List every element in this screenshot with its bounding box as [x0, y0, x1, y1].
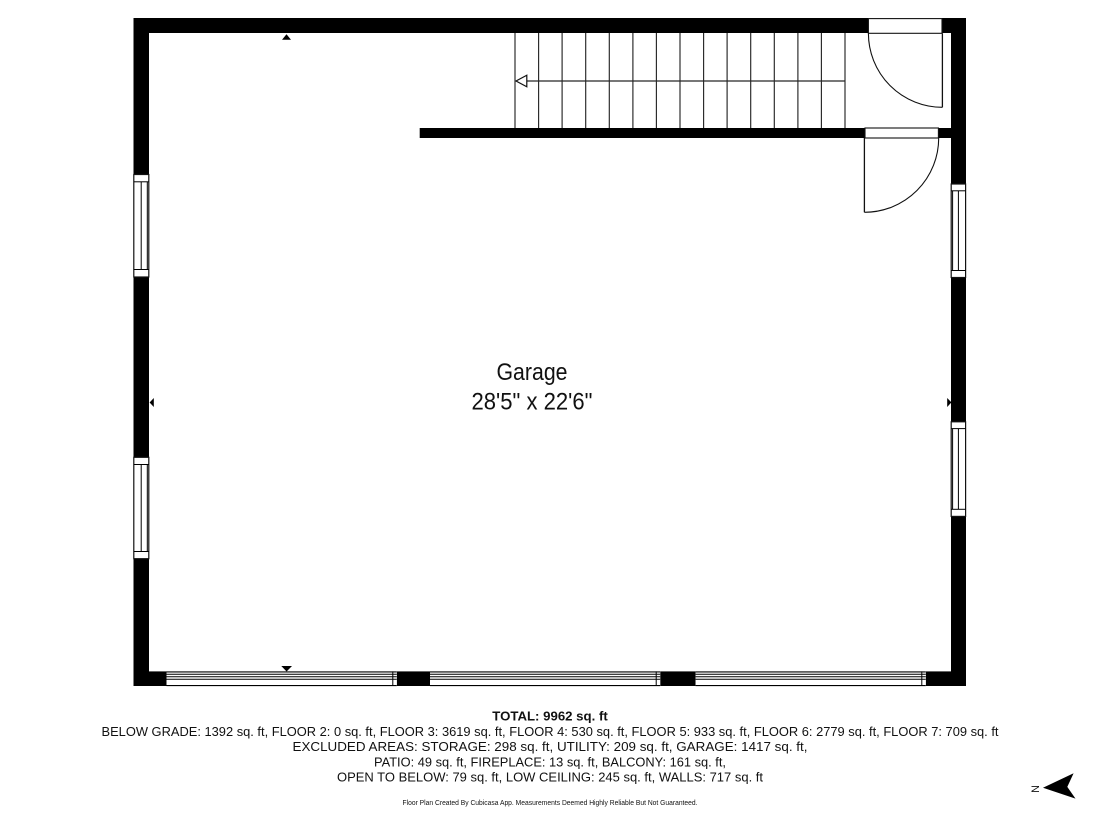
svg-text:OPEN TO BELOW: 79 sq. ft, LOW: OPEN TO BELOW: 79 sq. ft, LOW CEILING: 2… [337, 770, 763, 785]
svg-text:N: N [1029, 785, 1041, 793]
svg-text:Floor Plan Created By Cubicasa: Floor Plan Created By Cubicasa App. Meas… [403, 800, 698, 807]
svg-text:PATIO: 49 sq. ft, FIREPLACE: 1: PATIO: 49 sq. ft, FIREPLACE: 13 sq. ft, … [374, 754, 726, 769]
svg-text:EXCLUDED AREAS: STORAGE: 298 s: EXCLUDED AREAS: STORAGE: 298 sq. ft, UTI… [293, 739, 808, 754]
svg-text:28'5" x 22'6": 28'5" x 22'6" [472, 389, 593, 416]
svg-text:Garage: Garage [497, 359, 568, 386]
svg-text:TOTAL: 9962 sq. ft: TOTAL: 9962 sq. ft [492, 708, 608, 723]
svg-text:BELOW GRADE: 1392 sq. ft, FLOO: BELOW GRADE: 1392 sq. ft, FLOOR 2: 0 sq.… [102, 724, 999, 739]
